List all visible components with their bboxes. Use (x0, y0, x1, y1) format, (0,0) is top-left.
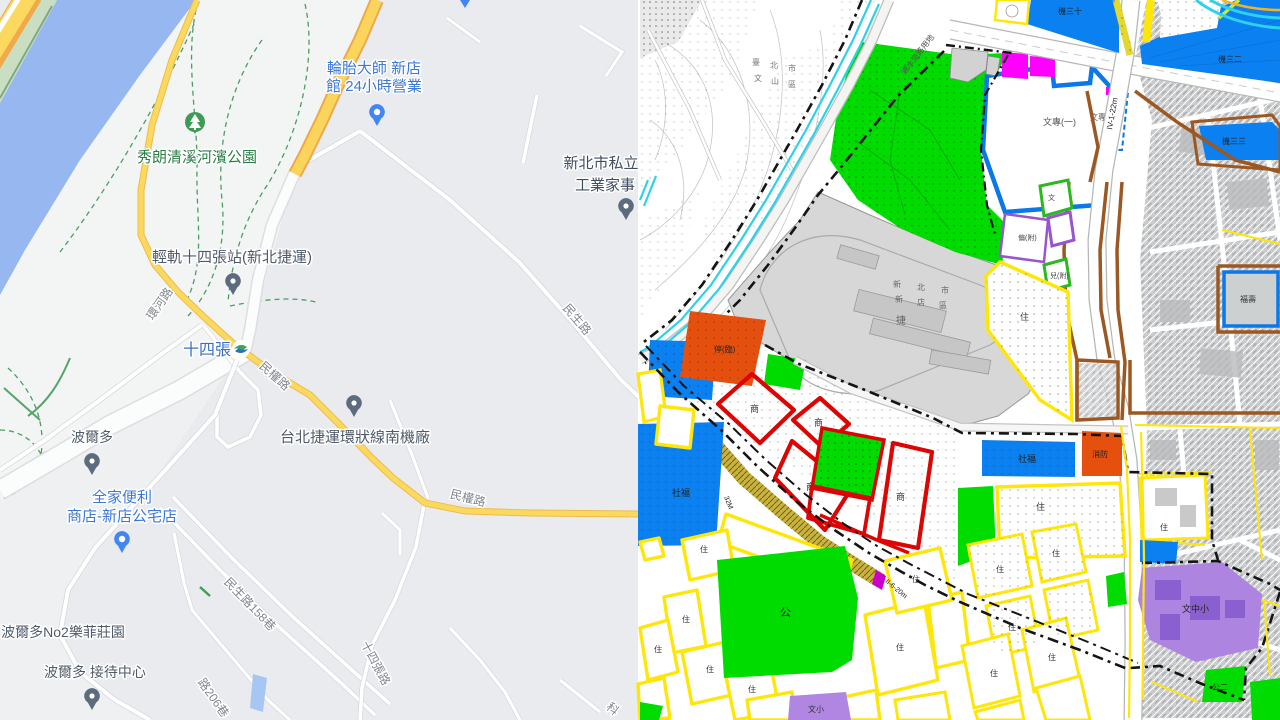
svg-text:文: 文 (1048, 193, 1055, 202)
svg-text:輕軌十四張站(新北捷運): 輕軌十四張站(新北捷運) (152, 249, 312, 266)
svg-text:住: 住 (996, 564, 1004, 574)
svg-text:偏(附): 偏(附) (1018, 233, 1037, 242)
svg-text:住: 住 (1052, 548, 1060, 558)
svg-text:住: 住 (1160, 522, 1168, 532)
svg-text:臺: 臺 (752, 57, 760, 67)
svg-text:區: 區 (788, 80, 796, 89)
svg-text:秀朗清溪河濱公園: 秀朗清溪河濱公園 (137, 149, 257, 166)
svg-text:住: 住 (748, 684, 756, 694)
svg-text:北: 北 (917, 283, 925, 292)
svg-text:新: 新 (895, 294, 903, 304)
svg-text:福壽: 福壽 (1240, 294, 1256, 304)
svg-text:文: 文 (754, 73, 762, 83)
svg-text:住: 住 (1048, 652, 1056, 662)
svg-text:社福: 社福 (672, 487, 690, 498)
svg-text:商店-新店公宅店: 商店-新店公宅店 (67, 508, 177, 525)
svg-text:捷: 捷 (896, 314, 906, 327)
svg-text:商: 商 (750, 403, 759, 414)
svg-text:住: 住 (1020, 311, 1029, 322)
svg-text:機三二: 機三二 (1218, 54, 1242, 64)
svg-text:山: 山 (771, 76, 779, 86)
svg-text:店: 店 (917, 297, 925, 307)
svg-text:社福: 社福 (1018, 453, 1036, 464)
svg-text:商: 商 (896, 491, 905, 502)
svg-text:住: 住 (654, 644, 662, 654)
svg-text:停(臨): 停(臨) (714, 344, 736, 354)
svg-text:北: 北 (770, 61, 778, 70)
svg-text:消防: 消防 (1092, 449, 1108, 459)
svg-text:住: 住 (682, 614, 690, 624)
svg-text:波爾多: 波爾多 (71, 429, 113, 445)
svg-text:十四張: 十四張 (183, 341, 231, 359)
svg-text:新: 新 (893, 279, 901, 289)
svg-text:住: 住 (700, 544, 708, 554)
svg-text:住: 住 (990, 668, 998, 678)
svg-text:輪胎大師 新店: 輪胎大師 新店 (327, 60, 421, 77)
svg-text:文中小: 文中小 (1182, 603, 1209, 614)
svg-text:波爾多 接待中心: 波爾多 接待中心 (44, 664, 146, 680)
svg-text:文小: 文小 (808, 704, 824, 714)
svg-text:兒(附): 兒(附) (1050, 271, 1069, 280)
svg-text:住: 住 (1036, 501, 1045, 512)
svg-text:機三十: 機三十 (1058, 6, 1082, 16)
svg-text:台北捷運環狀線南機廠: 台北捷運環狀線南機廠 (280, 428, 430, 446)
svg-text:區: 區 (939, 301, 947, 310)
svg-text:文專(一): 文專(一) (1043, 116, 1076, 127)
svg-text:館 24小時營業: 館 24小時營業 (326, 78, 422, 95)
svg-text:波爾多No2樂菲莊園: 波爾多No2樂菲莊園 (1, 624, 125, 640)
svg-text:市: 市 (788, 63, 796, 73)
svg-text:住: 住 (896, 642, 904, 652)
svg-text:全家便利: 全家便利 (92, 488, 152, 506)
svg-text:工業家事: 工業家事 (575, 177, 635, 194)
svg-text:住: 住 (706, 664, 714, 674)
svg-text:新北市私立: 新北市私立 (563, 155, 638, 172)
svg-text:市: 市 (941, 285, 949, 295)
svg-text:機三三: 機三三 (1222, 136, 1246, 146)
svg-text:公: 公 (780, 607, 791, 619)
